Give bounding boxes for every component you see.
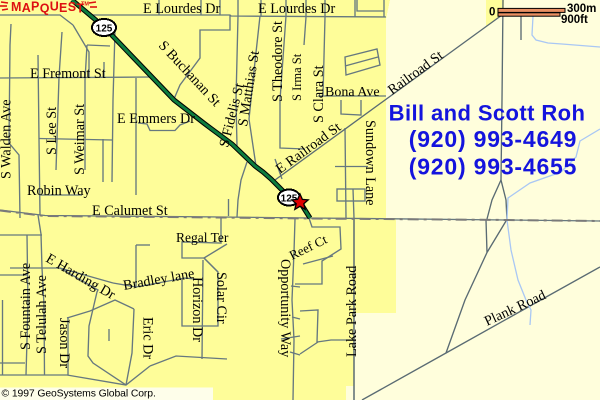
svg-text:E Calumet St: E Calumet St [92, 203, 168, 219]
svg-text:S Clara St: S Clara St [311, 65, 327, 123]
svg-text:Sundown Lane: Sundown Lane [362, 120, 378, 206]
svg-text:E Emmers Dr: E Emmers Dr [117, 111, 195, 127]
svg-text:Jason Dr: Jason Dr [56, 318, 72, 368]
svg-text:TM: TM [81, 2, 89, 8]
svg-text:0: 0 [489, 7, 495, 19]
svg-text:S Weimar St: S Weimar St [72, 104, 88, 175]
svg-text:Bill and Scott Roh: Bill and Scott Roh [389, 101, 586, 126]
svg-text:Eric Dr: Eric Dr [140, 317, 156, 359]
svg-text:Robin Way: Robin Way [27, 183, 92, 199]
svg-text:S Lee St: S Lee St [44, 107, 60, 155]
svg-text:MAPQUEST: MAPQUEST [11, 0, 84, 16]
svg-text:900ft: 900ft [561, 14, 588, 26]
svg-text:© 1997 GeoSystems Global Corp.: © 1997 GeoSystems Global Corp. [2, 389, 156, 400]
svg-text:Horizon Dr: Horizon Dr [189, 277, 205, 342]
svg-text:(920) 993-4649: (920) 993-4649 [409, 126, 577, 152]
svg-text:(920) 993-4655: (920) 993-4655 [409, 154, 577, 180]
svg-text:Lake Park Road: Lake Park Road [344, 266, 360, 357]
svg-text:S Telulah Ave: S Telulah Ave [34, 275, 50, 354]
svg-text:S Fountain Ave: S Fountain Ave [18, 263, 34, 350]
svg-text:S Walden Ave: S Walden Ave [0, 99, 15, 179]
svg-text:S Irma St: S Irma St [290, 53, 304, 101]
svg-text:E Lourdes Dr: E Lourdes Dr [143, 1, 220, 17]
svg-text:Regal Ter: Regal Ter [176, 230, 229, 245]
svg-text:Solar Cir: Solar Cir [213, 272, 229, 324]
svg-text:125: 125 [96, 24, 113, 35]
svg-text:E Lourdes Dr: E Lourdes Dr [258, 1, 335, 17]
svg-text:E Fremont St: E Fremont St [30, 66, 106, 82]
svg-text:S Theodore St: S Theodore St [270, 21, 286, 102]
svg-text:Bona Ave: Bona Ave [325, 85, 380, 100]
svg-text:Opportunity Way: Opportunity Way [277, 259, 293, 358]
